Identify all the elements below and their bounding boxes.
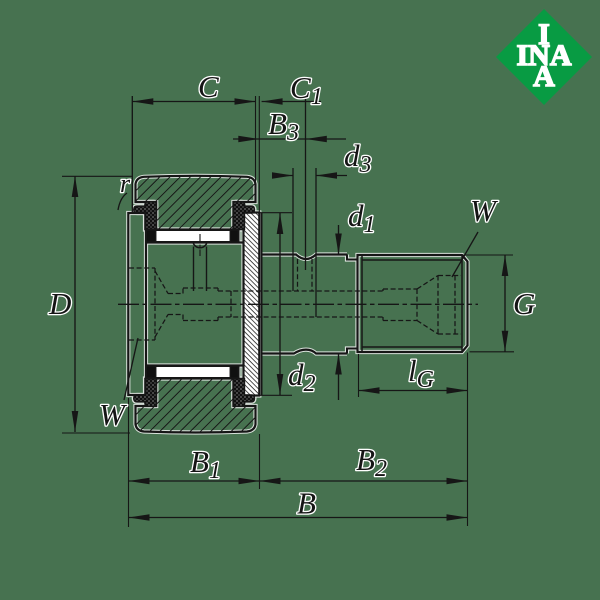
svg-text:W: W [99,397,128,432]
svg-text:A: A [533,60,555,93]
svg-text:G: G [513,286,535,321]
svg-text:r: r [120,169,131,198]
svg-text:W: W [470,193,499,228]
svg-text:D: D [48,286,71,321]
svg-text:C: C [198,69,219,104]
svg-text:B: B [297,486,316,521]
